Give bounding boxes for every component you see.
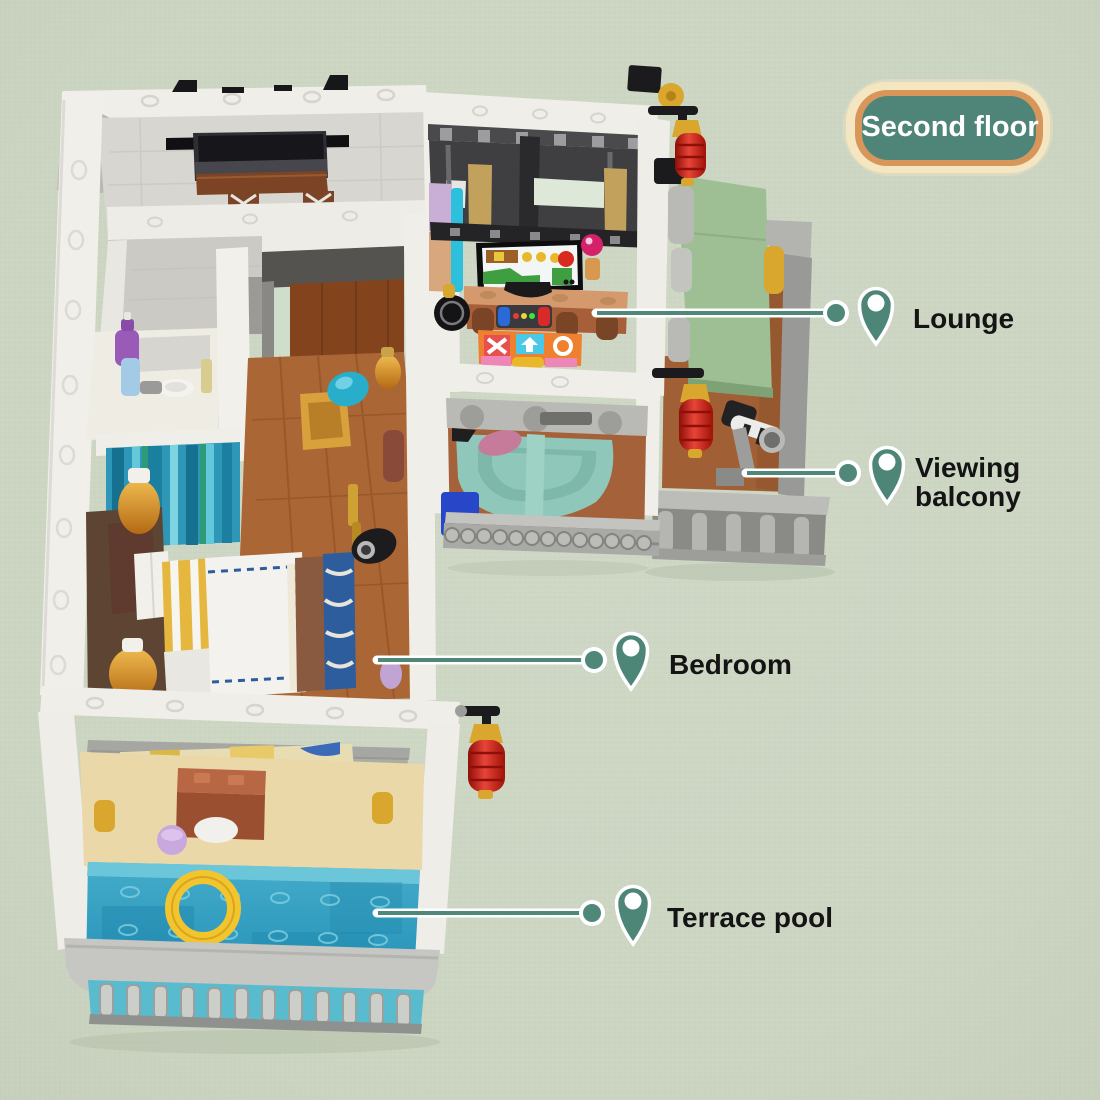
svg-text:Lounge: Lounge	[913, 303, 1014, 334]
svg-text:Second floor: Second floor	[861, 111, 1038, 143]
svg-text:balcony: balcony	[915, 481, 1021, 512]
svg-text:Terrace pool: Terrace pool	[667, 902, 833, 933]
svg-text:Viewing: Viewing	[915, 452, 1020, 483]
svg-text:Bedroom: Bedroom	[669, 649, 792, 680]
